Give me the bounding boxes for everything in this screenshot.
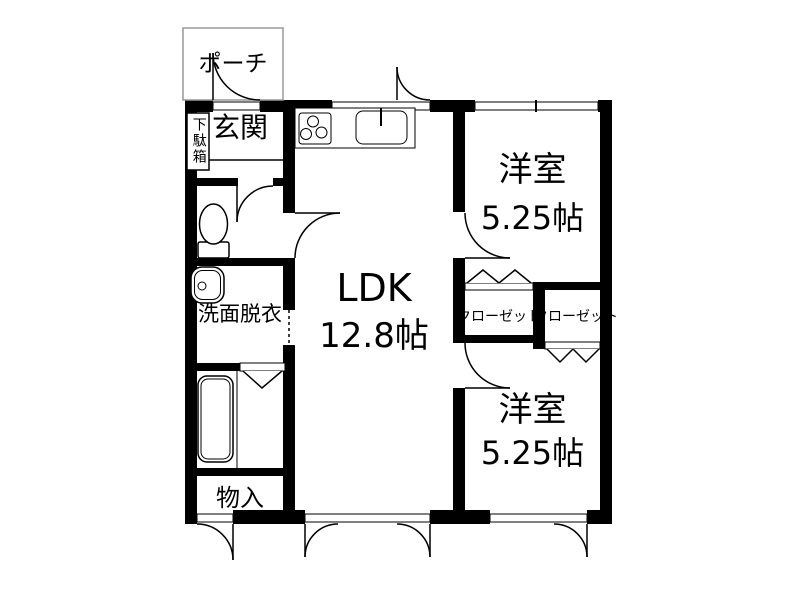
storage-label: 物入 [197, 486, 283, 511]
closet-right-bifold-door [545, 342, 600, 362]
toilet-icon [198, 204, 229, 258]
ldk-name-label: LDK [295, 269, 453, 309]
wall-segment [430, 510, 490, 524]
washroom-label: 洗面脱衣 [190, 303, 290, 325]
wall-segment [233, 510, 305, 524]
wall-segment [197, 258, 295, 266]
bathtub-icon [198, 376, 233, 462]
kitchen-counter [295, 108, 415, 148]
wall-segment [197, 363, 240, 371]
ldk-size-label: 12.8帖 [295, 319, 453, 355]
floorplan: ポーチ 玄関 下駄箱 洗面脱衣 物入 LDK 12.8帖 洋室 5.25帖 洋室… [0, 0, 800, 600]
shoe-cabinet-label: 下駄箱 [191, 117, 206, 169]
closet-left-bifold-door [465, 270, 533, 290]
bedroom2-size-label: 5.25帖 [465, 437, 600, 471]
wall-segment [453, 388, 465, 510]
wall-segment [197, 178, 238, 186]
kitchen-sink-icon [356, 108, 407, 144]
wall-segment [453, 335, 545, 343]
storage-door-sill [197, 514, 233, 522]
washbasin-icon [191, 267, 224, 303]
porch-label: ポーチ [183, 52, 283, 76]
bedroom1-size-label: 5.25帖 [465, 202, 600, 236]
bedroom2-window-pane [554, 524, 587, 557]
bath-folding-door [240, 363, 285, 388]
ldk-entry-door [295, 213, 340, 258]
kitchen-back-door [397, 67, 430, 100]
genkan-label: 玄関 [197, 113, 283, 142]
bedroom2-name-label: 洋室 [465, 393, 600, 429]
wall-segment [453, 258, 465, 343]
bedroom2-door [465, 343, 510, 388]
bedroom2-window [490, 514, 587, 522]
wall-segment [273, 178, 283, 186]
wall-segment [430, 100, 475, 112]
closet-right-label: クローゼット [521, 310, 631, 325]
toilet-door [237, 186, 273, 222]
stove-icon [299, 113, 331, 144]
wall-segment [285, 363, 295, 371]
wall-segment [283, 100, 295, 213]
wall-segment [453, 100, 465, 212]
entry-door-sill [213, 102, 260, 110]
ldk-terrace-door-right [397, 524, 430, 557]
wall-segment [197, 468, 295, 476]
bedroom1-name-label: 洋室 [465, 153, 600, 189]
ldk-terrace-door-left [305, 524, 338, 557]
ldk-door-sill [305, 514, 430, 522]
storage-exterior-door [197, 524, 233, 560]
